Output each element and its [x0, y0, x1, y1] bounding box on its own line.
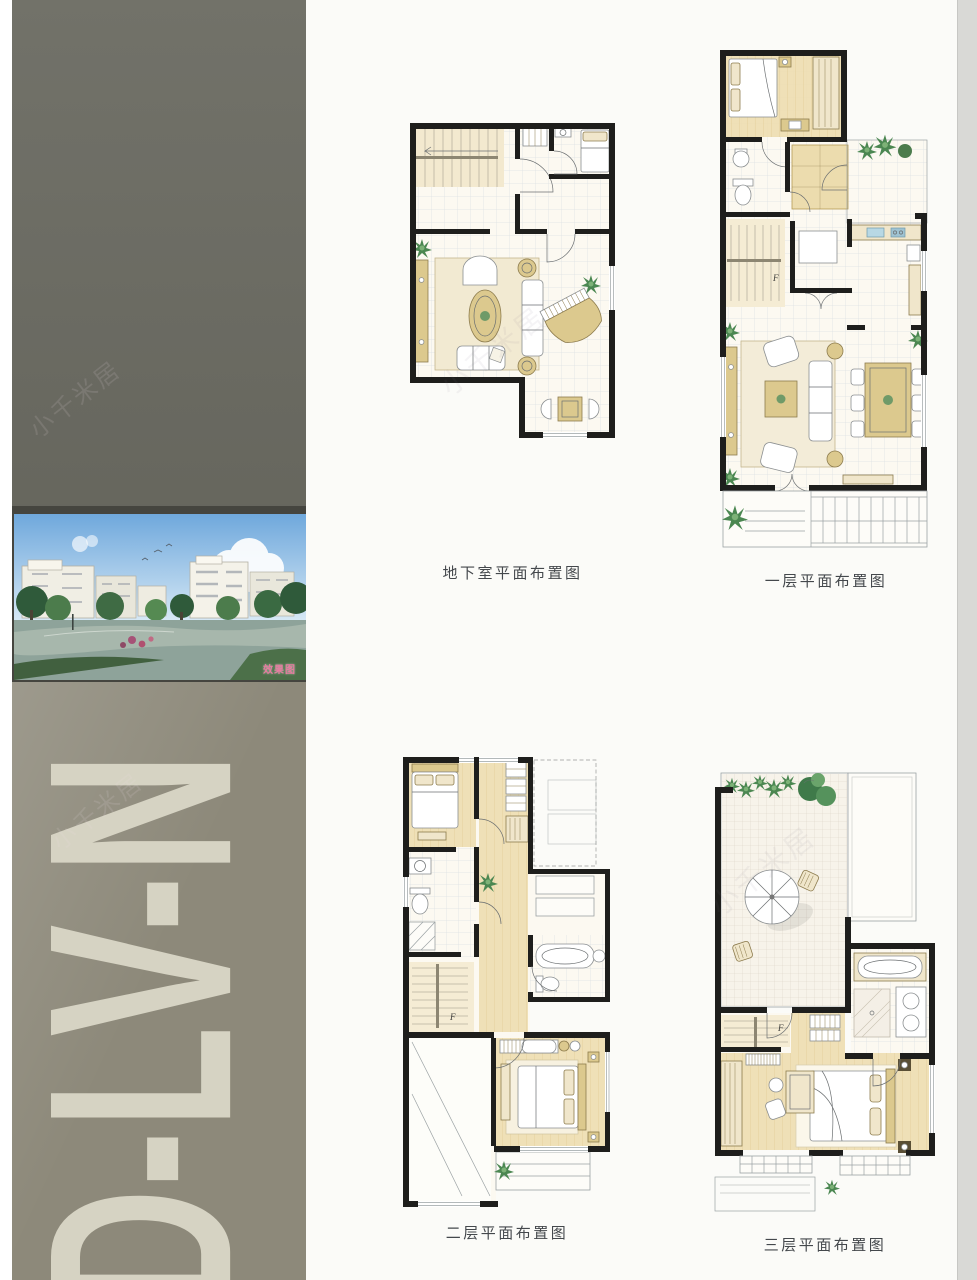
bush [811, 773, 825, 787]
bed [518, 1064, 586, 1130]
bush [816, 786, 836, 806]
bench [501, 1064, 510, 1120]
closet [810, 1015, 840, 1041]
caption-level-1: 一层平面布置图 [715, 570, 937, 591]
patio-umbrella [745, 870, 799, 924]
project-rendering-photo: 效果图 [12, 506, 306, 682]
brochure-page: 小千米居 [0, 0, 977, 1280]
closet [506, 762, 528, 842]
side-table [827, 451, 843, 467]
svg-text:F: F [777, 1023, 784, 1033]
stairs [416, 129, 504, 187]
caption-level-3: 三层平面布置图 [710, 1234, 940, 1255]
unit-code-vertical-text: D-LV-N [24, 682, 272, 1280]
rendering-illustration [14, 514, 306, 680]
plant [824, 1180, 840, 1195]
tv-console [415, 260, 428, 362]
tv-console [725, 347, 737, 455]
side-table [559, 1041, 569, 1051]
armchair [463, 256, 497, 285]
bed [729, 59, 777, 117]
bench [418, 832, 446, 840]
svg-text:F: F [449, 1012, 456, 1022]
side-table [827, 343, 843, 359]
chaise [522, 1040, 556, 1053]
dining-table [851, 363, 925, 437]
sidebar-bottom-panel: D-LV-N 小千米居 [12, 682, 306, 1280]
bay-window [840, 1156, 910, 1175]
sofa [809, 361, 832, 441]
floor-plan-level-3: F [710, 765, 940, 1215]
bay-window [740, 1156, 812, 1173]
side-table [518, 259, 536, 277]
double-height-void [409, 1038, 491, 1201]
table-set [541, 397, 599, 421]
stairs: F [721, 1015, 790, 1047]
storage-room [799, 231, 837, 263]
floor-plan-level-2: F [398, 752, 616, 1220]
bathroom [854, 953, 926, 1037]
caption-basement: 地下室平面布置图 [405, 562, 620, 583]
bed [810, 1069, 895, 1143]
coffee-table [469, 290, 501, 342]
svg-text:F: F [772, 273, 779, 283]
wardrobe [721, 1061, 742, 1146]
sidebar: 小千米居 [0, 0, 306, 1280]
loveseat [457, 346, 505, 370]
open-void [534, 760, 596, 866]
bed [412, 764, 458, 828]
bed [581, 130, 609, 172]
adjacent-roof [848, 773, 916, 921]
side-table [518, 357, 536, 375]
striped-cabinet [746, 1054, 780, 1065]
sidebar-top-panel: 小千米居 [12, 0, 306, 506]
lower-roof [715, 1177, 815, 1211]
balcony [494, 1152, 590, 1190]
page-edge-shadow [957, 0, 977, 1280]
stairs: F [726, 219, 785, 307]
roof-terrace [721, 773, 848, 1007]
floor-plan-level-1: F [715, 45, 937, 555]
floor-plan-basement [405, 118, 620, 443]
stairs: F [406, 962, 474, 1032]
photo-label: 效果图 [263, 661, 296, 676]
low-cabinet [843, 475, 893, 484]
sofa [522, 280, 543, 356]
chair [570, 1041, 580, 1051]
bush [898, 144, 912, 158]
wardrobe [813, 57, 839, 129]
terrace [722, 491, 927, 547]
caption-level-2: 二层平面布置图 [398, 1222, 616, 1243]
watermark: 小千米居 [21, 350, 128, 444]
